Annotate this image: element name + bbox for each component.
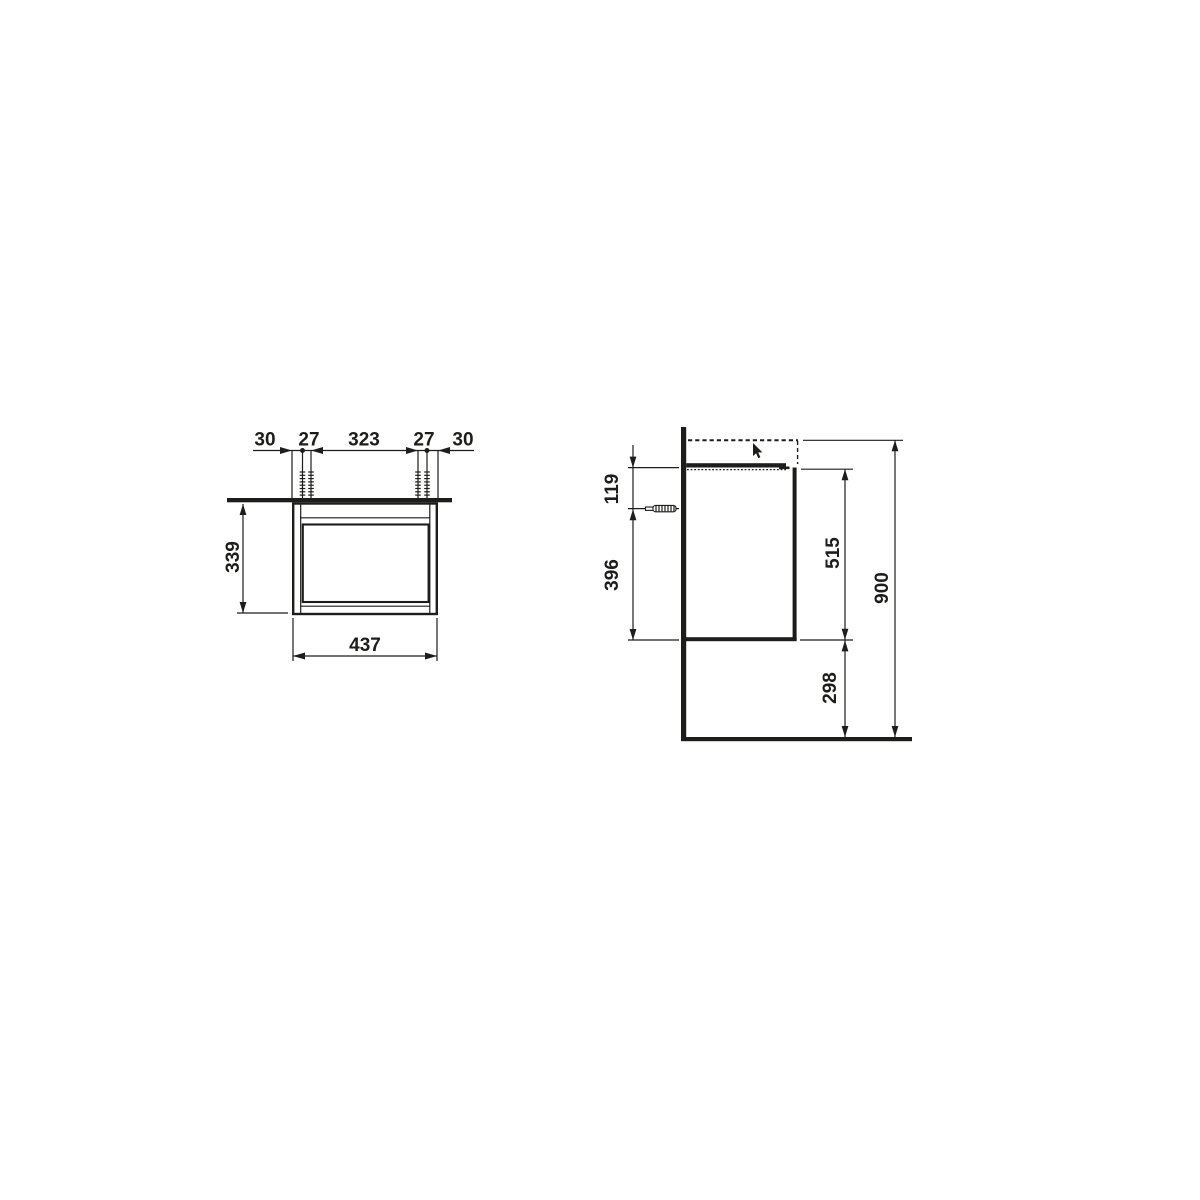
screw-icon	[415, 451, 421, 499]
dim-body-height: 515	[823, 537, 844, 569]
dim-top-offset: 119	[602, 474, 623, 505]
screw-icon	[308, 451, 314, 499]
front-top-dimension-line	[253, 447, 474, 498]
mounting-screw-icons	[300, 451, 430, 499]
side-left-dimension	[630, 445, 637, 640]
side-middle-dimension	[842, 469, 849, 737]
cursor-icon	[753, 443, 762, 458]
side-cabinet	[684, 463, 797, 641]
side-view: 119 396 515 298 900	[602, 427, 912, 741]
front-countertop	[227, 498, 452, 502]
dim-height: 339	[223, 541, 244, 573]
drawing-svg: 30 27 323 27 30 339 437	[0, 0, 1200, 1200]
dim-total-height: 900	[872, 572, 893, 604]
dim-offset-right: 30	[452, 430, 473, 451]
floor-line	[681, 737, 912, 741]
dim-lower-span: 396	[602, 559, 623, 591]
dim-floor-clearance: 298	[820, 672, 841, 704]
screw-icon	[300, 451, 306, 499]
basin-dashed-outline	[688, 440, 798, 464]
dim-offset-left: 30	[254, 430, 275, 451]
front-cabinet	[293, 503, 437, 614]
screw-icon	[424, 451, 430, 499]
dim-fixing-right: 27	[413, 430, 434, 451]
screw-icon	[628, 505, 679, 511]
front-view: 30 27 323 27 30 339 437	[223, 430, 474, 662]
dim-width: 437	[349, 635, 381, 656]
wall-line	[681, 427, 686, 741]
dim-fixing-left: 27	[298, 430, 319, 451]
side-extension-lines	[628, 440, 903, 640]
drawer-front	[303, 525, 429, 603]
dim-fixing-span: 323	[348, 430, 380, 451]
technical-drawing-canvas: 30 27 323 27 30 339 437	[0, 0, 1200, 1200]
front-height-dimension	[237, 504, 288, 613]
